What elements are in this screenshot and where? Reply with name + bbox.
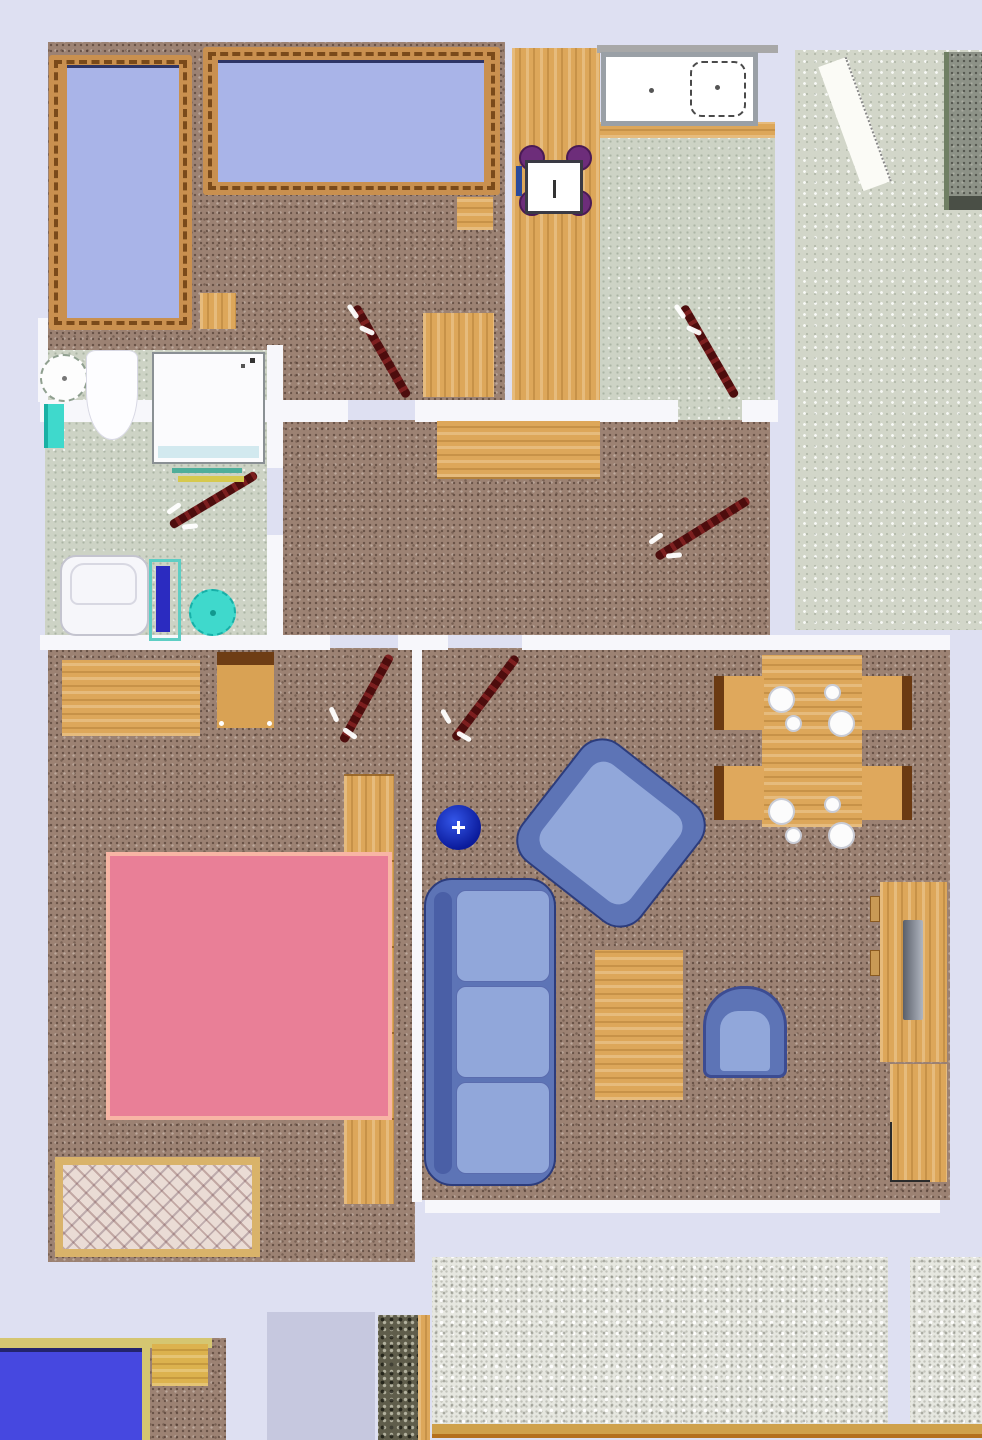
terrace-bottom-edging (432, 1424, 982, 1434)
neighbor-nightstand (152, 1344, 208, 1386)
shower-head (250, 358, 255, 363)
tv (903, 920, 923, 1020)
chair-foot (219, 721, 224, 726)
bath-stool (189, 589, 236, 636)
kitchen-table (525, 160, 583, 214)
towel-bar (172, 468, 242, 473)
bath-stool-center (210, 610, 216, 616)
dinner-plate (828, 710, 855, 737)
dining-chair-back (902, 676, 912, 730)
sofa-cushion (456, 1082, 550, 1174)
sink-drain (649, 88, 654, 93)
sofa-backrest (434, 892, 452, 1174)
dinner-plate (768, 686, 795, 713)
room-kitchen-floor (600, 138, 775, 420)
nightstand (457, 197, 493, 230)
shower-valve (241, 364, 245, 368)
wall-bedroom-living-divider (412, 648, 422, 1202)
neighbor-room-middle-floor (267, 1312, 375, 1440)
wall-hall-bottom-b (398, 635, 448, 650)
washbasin-drain (62, 376, 67, 381)
dinner-plate (768, 798, 795, 825)
dining-chair (714, 676, 764, 730)
tv-sideboard-knob (870, 950, 880, 976)
sofa-three-seat (424, 878, 556, 1186)
desk-chair (217, 652, 274, 728)
desk-chair-back (217, 652, 274, 665)
sink-drain (715, 85, 720, 90)
wall-mid-horizontal-c (742, 400, 778, 422)
coffee-table (595, 950, 683, 1100)
wall-bathroom-right-a (267, 345, 283, 468)
floor-plan-canvas (0, 0, 982, 1440)
kitchen-table-centerline (553, 180, 556, 198)
armchair-small-seat (720, 1011, 770, 1071)
wall-hall-bottom-c (522, 635, 950, 650)
dining-chair (714, 766, 764, 820)
dining-chair-back (714, 676, 724, 730)
bed-mattress-horizontal (218, 60, 484, 182)
patterned-rug (55, 1157, 260, 1257)
dining-chair (862, 766, 912, 820)
tv-sideboard-knob (870, 896, 880, 922)
bathtub (60, 555, 149, 636)
neighbor-bed-blue (0, 1348, 142, 1440)
wall-living-bottom (425, 1200, 940, 1213)
dinner-plate (828, 822, 855, 849)
dining-chair (862, 676, 912, 730)
bowl (785, 715, 802, 732)
dining-chair-back (902, 766, 912, 820)
double-bed-pink (106, 852, 392, 1120)
shower-tray (158, 446, 259, 458)
sofa-cushion (456, 890, 550, 982)
armchair-small (703, 986, 787, 1078)
bowl (824, 684, 841, 701)
hall-sideboard (437, 421, 600, 479)
towel-bar (178, 476, 244, 482)
washbasin-round (40, 354, 88, 402)
bowl (824, 796, 841, 813)
sofa-cushion (456, 986, 550, 1078)
kitchen-counter (512, 48, 600, 420)
bowl (785, 827, 802, 844)
desk (62, 660, 200, 736)
bath-mat (156, 566, 170, 632)
neighbor-bed-rail-right (142, 1348, 150, 1440)
cabinet-edge (890, 1180, 930, 1182)
cabinet-edge (890, 1122, 892, 1182)
bathtub-inner (70, 563, 137, 605)
kitchen-sink-unit (601, 52, 758, 126)
chair-foot (267, 721, 272, 726)
wall-hall-bottom-a (40, 635, 330, 650)
terrace-bottom-edging-dark (432, 1434, 982, 1438)
nightstand (200, 293, 236, 329)
wall-bathroom-right-b (267, 535, 283, 638)
dining-chair-back (714, 766, 724, 820)
stool-star (452, 826, 465, 829)
doormat (944, 52, 982, 210)
cabinet (890, 1064, 947, 1182)
side-table (423, 313, 494, 397)
towel-shelf (44, 404, 64, 448)
round-stool-blue (436, 805, 481, 850)
terrace-gravel-main (432, 1257, 888, 1424)
wall-mid-horizontal-b (415, 400, 678, 422)
shower-cabin (152, 352, 265, 464)
kitchen-table-leg (516, 166, 522, 196)
doormat-edge (949, 196, 982, 210)
terrace-left-edging (418, 1315, 430, 1440)
bed-mattress-vertical (67, 65, 179, 318)
terrace-gravel-right (910, 1257, 982, 1424)
